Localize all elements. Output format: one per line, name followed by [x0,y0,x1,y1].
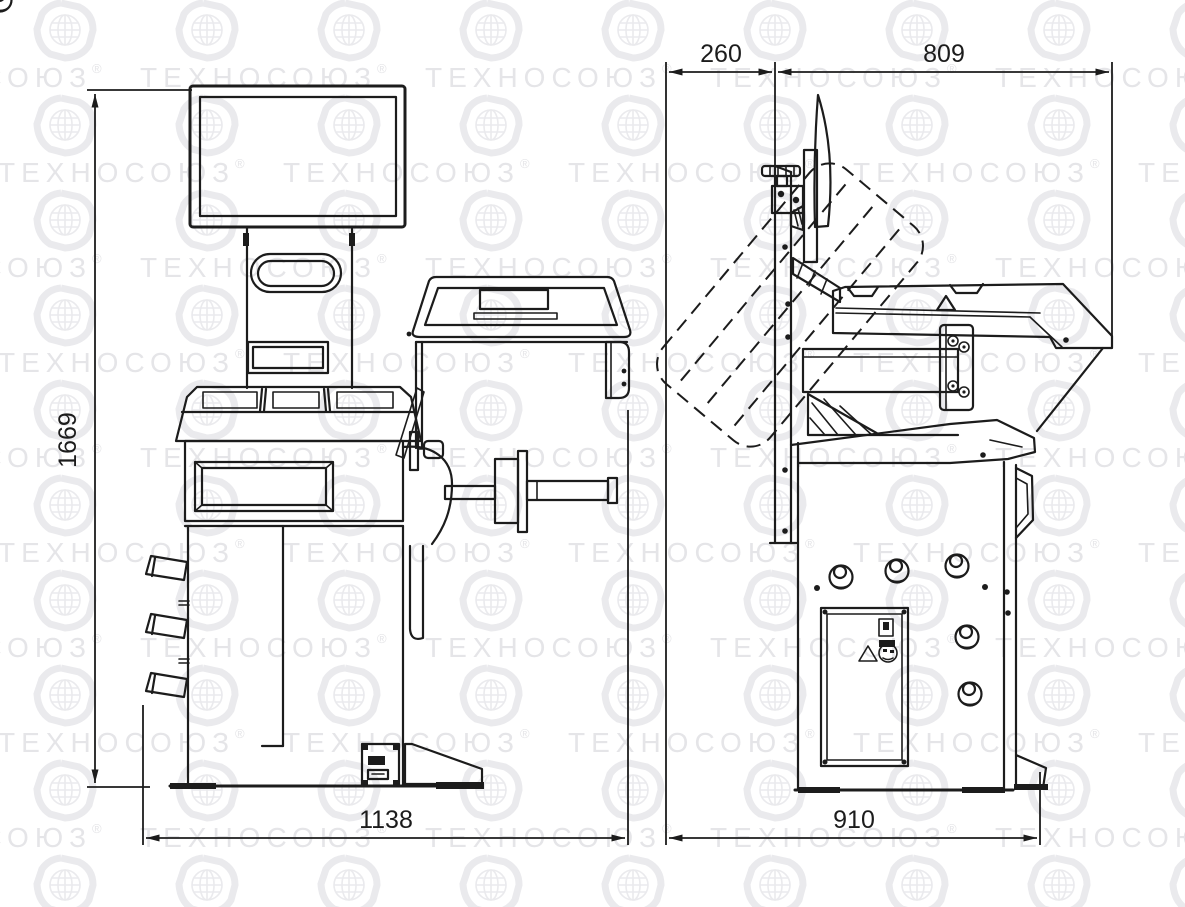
watermark-text: ТЕХНОСОЮЗ® [0,251,108,283]
watermark-text: ТЕХНОСОЮЗ® [140,251,393,283]
watermark-text: ТЕХНОСОЮЗ® [283,156,536,188]
watermark-text: ТЕХНОСОЮЗ® [0,726,251,758]
watermark-text: ТЕХНОСОЮЗ® [995,251,1185,283]
wheel-balancer-drawing: ТЕХНОСОЮЗ®ТЕХНОСОЮЗ®ТЕХНОСОЮЗ®ТЕХНОСОЮЗ®… [0,0,1185,907]
watermark-text: ТЕХНОСОЮЗ® [0,821,108,853]
watermark-text: ТЕХНОСОЮЗ® [1138,156,1185,188]
watermark-text: ТЕХНОСОЮЗ® [140,61,393,93]
watermark-text: ТЕХНОСОЮЗ® [0,346,251,378]
dimension-label-overall-depth: 910 [833,806,875,834]
dimension-label-overall-height: 1669 [54,412,82,468]
watermark-text: ТЕХНОСОЮЗ® [0,156,251,188]
monitor-side [804,95,830,262]
watermark-text: ТЕХНОСОЮЗ® [1138,536,1185,568]
watermark-text: ТЕХНОСОЮЗ® [425,821,678,853]
watermark-text: ТЕХНОСОЮЗ® [568,536,821,568]
watermark-text: ТЕХНОСОЮЗ® [0,631,108,663]
watermark-text: ТЕХНОСОЮЗ® [425,251,678,283]
watermark-text: ТЕХНОСОЮЗ® [853,156,1106,188]
watermark-text: ТЕХНОСОЮЗ® [995,821,1185,853]
dimension-label-guard-offset: 260 [700,40,742,68]
base-foot-pad [170,783,216,789]
watermark-text: ТЕХНОСОЮЗ® [425,631,678,663]
watermark-layer: ТЕХНОСОЮЗ®ТЕХНОСОЮЗ®ТЕХНОСОЮЗ®ТЕХНОСОЮЗ®… [0,3,1185,907]
dimension-label-guard-reach: 809 [923,40,965,68]
watermark-text: ТЕХНОСОЮЗ® [1138,346,1185,378]
watermark-text: ТЕХНОСОЮЗ® [568,726,821,758]
watermark-text: ТЕХНОСОЮЗ® [140,631,393,663]
watermark-text: ТЕХНОСОЮЗ® [853,346,1106,378]
watermark-text: ТЕХНОСОЮЗ® [283,726,536,758]
watermark-text: ТЕХНОСОЮЗ® [568,156,821,188]
watermark-text: ТЕХНОСОЮЗ® [0,61,108,93]
watermark-text: ТЕХНОСОЮЗ® [140,821,393,853]
watermark-text: ТЕХНОСОЮЗ® [710,631,963,663]
watermark-text: ТЕХНОСОЮЗ® [853,726,1106,758]
watermark-text: ТЕХНОСОЮЗ® [710,251,963,283]
watermark-text: ТЕХНОСОЮЗ® [425,441,678,473]
shaft [527,481,608,500]
dimension-label-overall-width: 1138 [359,806,413,834]
watermark-text: ТЕХНОСОЮЗ® [995,61,1185,93]
weight-tray [176,387,421,441]
watermark-text: ТЕХНОСОЮЗ® [995,441,1185,473]
power-switch-icon [368,756,385,765]
technical-drawing-page: ТЕХНОСОЮЗ®ТЕХНОСОЮЗ®ТЕХНОСОЮЗ®ТЕХНОСОЮЗ®… [0,0,1185,907]
watermark-text: ТЕХНОСОЮЗ® [1138,726,1185,758]
watermark-text: ТЕХНОСОЮЗ® [995,631,1185,663]
watermark-text: ТЕХНОСОЮЗ® [0,536,251,568]
watermark-text: ТЕХНОСОЮЗ® [425,61,678,93]
